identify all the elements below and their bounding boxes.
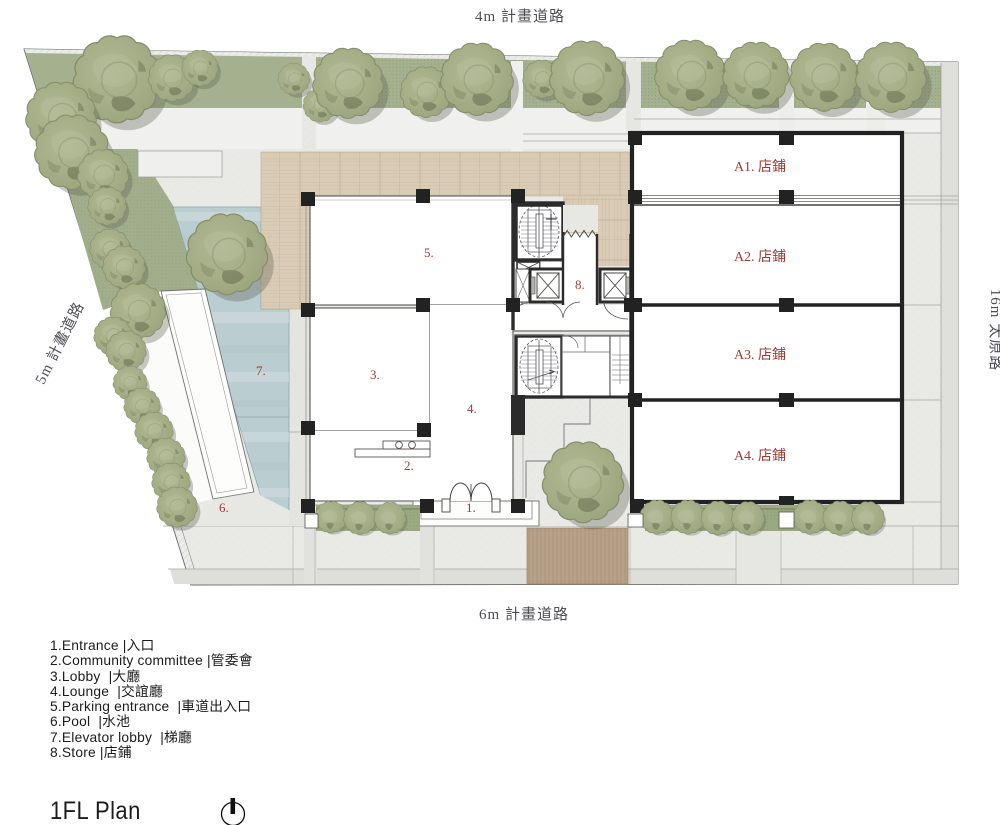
svg-text:4.: 4. bbox=[467, 401, 477, 416]
svg-text:7.: 7. bbox=[256, 363, 266, 378]
svg-text:A3. 店鋪: A3. 店鋪 bbox=[734, 347, 786, 363]
svg-text:8.: 8. bbox=[575, 277, 585, 292]
svg-text:4m 計畫道路: 4m 計畫道路 bbox=[475, 8, 565, 25]
svg-text:6.: 6. bbox=[219, 500, 229, 515]
svg-text:5m 計畫道路: 5m 計畫道路 bbox=[32, 299, 88, 387]
svg-text:2.: 2. bbox=[404, 458, 414, 473]
svg-text:A1. 店鋪: A1. 店鋪 bbox=[734, 159, 786, 175]
svg-text:5.: 5. bbox=[424, 245, 434, 260]
svg-text:3.: 3. bbox=[370, 367, 380, 382]
svg-text:A2. 店鋪: A2. 店鋪 bbox=[734, 249, 786, 265]
svg-text:6m 計畫道路: 6m 計畫道路 bbox=[479, 606, 569, 623]
svg-text:1.: 1. bbox=[466, 500, 476, 515]
svg-text:A4. 店鋪: A4. 店鋪 bbox=[734, 448, 786, 464]
svg-text:16m 太原路: 16m 太原路 bbox=[987, 289, 1000, 371]
